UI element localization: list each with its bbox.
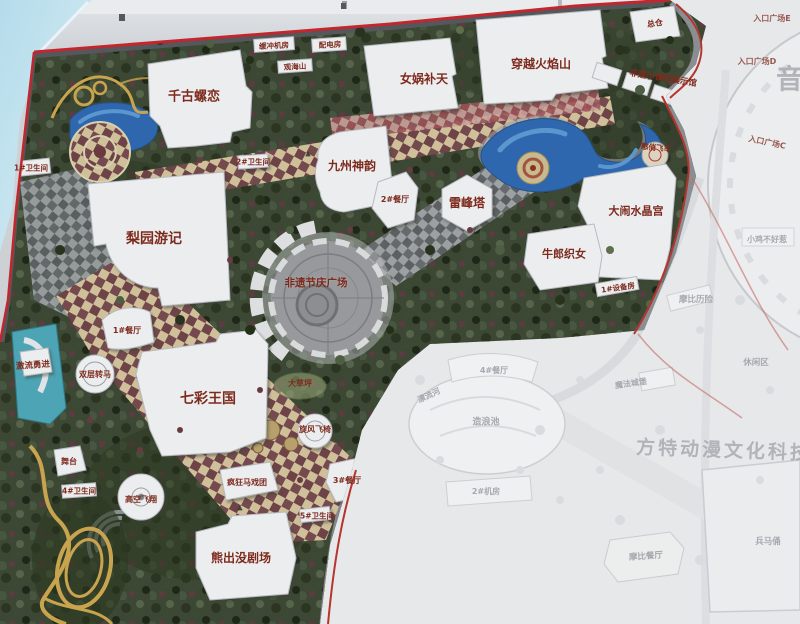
map-label: 魔法城堡 xyxy=(615,378,648,390)
map-label: 3#餐厅 xyxy=(333,477,361,485)
map-label: 4#餐厅 xyxy=(480,367,508,375)
map-label: 观海山 xyxy=(284,63,307,72)
map-label: 穿越火焰山 xyxy=(511,58,571,70)
map-label: 熊出没剧场 xyxy=(211,552,271,564)
map-label: 梨园游记 xyxy=(126,232,182,246)
map-label: 摩比餐厅 xyxy=(629,552,664,563)
map-label: 入口广场D xyxy=(738,58,777,66)
map-label: 九州神韵 xyxy=(328,160,376,172)
map-label: 憨俏飞车 xyxy=(641,143,672,154)
map-label: 疯狂马戏团 xyxy=(227,479,267,487)
map-label: 小鸡不好惹 xyxy=(747,236,787,244)
map-labels-layer: 千古螺恋女娲补天穿越火焰山九州神韵雷峰塔大闹水晶宫牛郎织女梨园游记七彩王国熊出没… xyxy=(0,0,800,624)
map-label: 总仓 xyxy=(647,19,664,29)
map-label: 2#卫生间 xyxy=(236,158,270,166)
map-label: 1#餐厅 xyxy=(113,327,141,335)
map-label: 双层转马 xyxy=(79,371,111,379)
map-label: 牛郎织女 xyxy=(542,249,586,260)
map-label: 旋风飞椅 xyxy=(299,426,331,434)
map-label: 女娲补天 xyxy=(400,73,448,85)
map-label: 1#设备房 xyxy=(601,282,636,294)
map-label: 入口广场E xyxy=(753,15,790,23)
map-label: 方特动漫文化科技 xyxy=(636,438,800,463)
map-label: 雷峰塔 xyxy=(449,197,485,209)
map-label: 大闹水晶宫 xyxy=(609,206,664,217)
map-label: 1#卫生间 xyxy=(14,164,48,172)
map-label: 4#卫生间 xyxy=(62,487,96,495)
map-label: 七彩王国 xyxy=(180,392,236,406)
map-label: 5#卫生间 xyxy=(300,512,334,520)
map-label: 配电房 xyxy=(319,41,342,50)
map-label: 兵马俑 xyxy=(755,538,781,547)
map-label: 大草坪 xyxy=(288,380,312,388)
map-label: 非遗小镇和展示馆 xyxy=(629,69,698,88)
photo-of-park-map-sign: 千古螺恋女娲补天穿越火焰山九州神韵雷峰塔大闹水晶宫牛郎织女梨园游记七彩王国熊出没… xyxy=(0,0,800,624)
map-label: 非遗节庆广场 xyxy=(285,278,348,289)
map-label: ▲ xyxy=(237,505,242,512)
map-label: 缓冲机房 xyxy=(259,41,289,50)
map-label: 造浪池 xyxy=(472,419,499,428)
map-label: 休闲区 xyxy=(743,359,769,368)
map-label: 漂流河 xyxy=(416,387,441,404)
map-label: 千古螺恋 xyxy=(168,91,220,104)
map-label: 高空飞翔 xyxy=(125,496,157,504)
map-label: 入口广场C xyxy=(748,135,787,151)
map-label: 激流勇进 xyxy=(16,361,51,372)
map-label: 摩比历险 xyxy=(679,296,713,305)
map-label: 2#机房 xyxy=(472,488,500,496)
map-label: 舞台 xyxy=(61,458,77,466)
map-label: 音 xyxy=(776,67,800,94)
map-label: 2#餐厅 xyxy=(381,196,409,204)
map-label: ▲ xyxy=(305,151,310,158)
